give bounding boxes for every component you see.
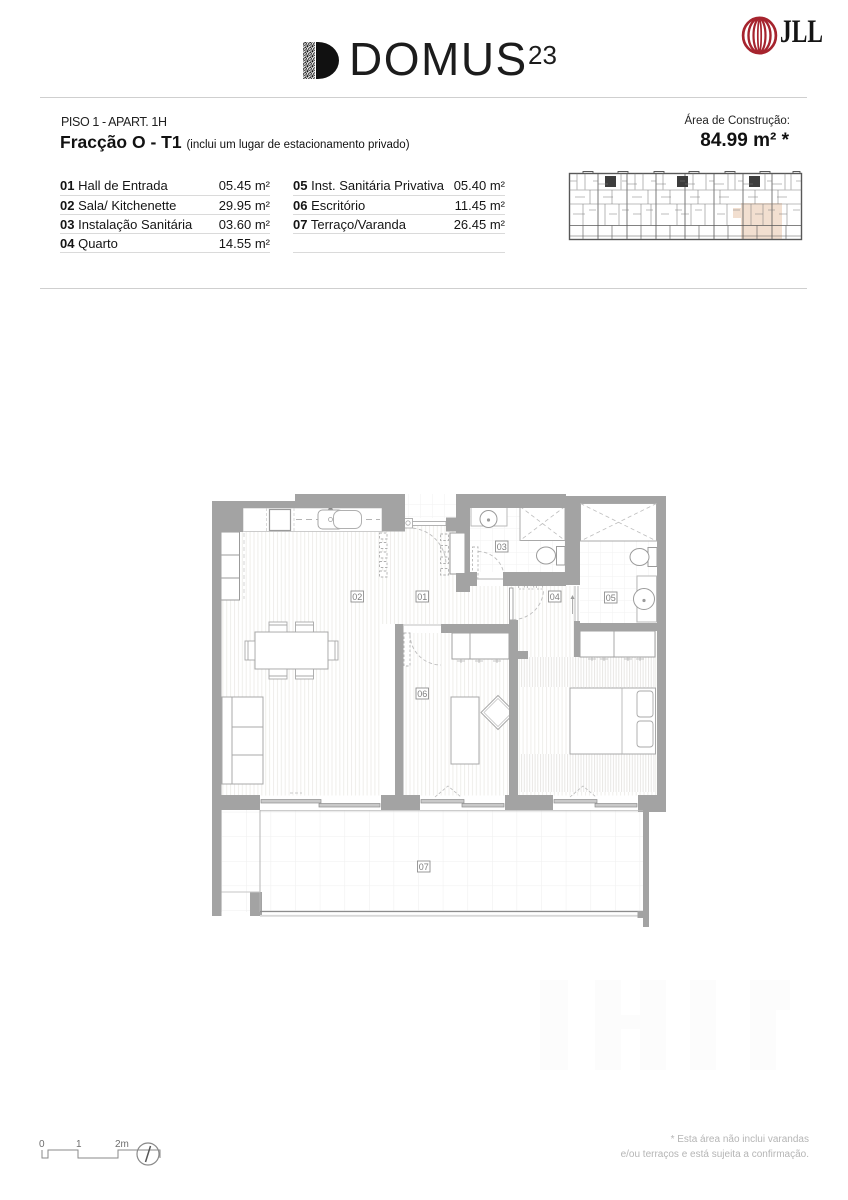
svg-text:06: 06 <box>417 689 427 699</box>
svg-text:04: 04 <box>550 592 560 602</box>
svg-text:02: 02 <box>352 592 362 602</box>
svg-text:03: 03 <box>497 542 507 552</box>
svg-text:2m: 2m <box>115 1139 129 1150</box>
svg-text:07: 07 <box>419 862 429 872</box>
svg-text:1: 1 <box>76 1139 82 1150</box>
svg-text:01: 01 <box>417 592 427 602</box>
svg-text:05: 05 <box>606 593 616 603</box>
svg-text:0: 0 <box>39 1139 45 1150</box>
